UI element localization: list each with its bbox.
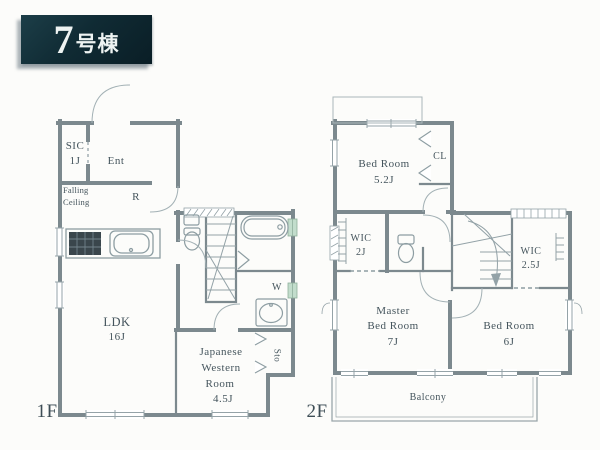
closet-door-chevrons [419, 131, 431, 181]
label-washer: W [272, 283, 282, 293]
label-jwr-3: Room [206, 379, 235, 390]
kitchen-counter [66, 229, 160, 258]
windows [55, 119, 582, 419]
label-bedroom6: Bed Room [483, 321, 534, 332]
toilet-2f [398, 235, 414, 263]
floorplan-drawing [0, 0, 600, 450]
label-entrance: Ent [108, 156, 125, 167]
bathtub [238, 216, 288, 269]
label-balcony: Balcony [410, 393, 447, 403]
stairs-2f [452, 214, 512, 287]
label-ldk: LDK [103, 316, 130, 329]
label-refrigerator: R [132, 192, 140, 203]
toilet-1f [184, 215, 200, 250]
stairs-1f [206, 216, 236, 299]
label-master-1: Master [376, 306, 410, 317]
floorplan-page: 7 号棟 [0, 0, 600, 450]
label-closet: CL [433, 152, 447, 162]
label-master-2: Bed Room [367, 321, 418, 332]
label-jwr-2: Western [201, 363, 240, 374]
label-floor-1f: 1F [36, 402, 57, 421]
label-wic2-size: 2J [356, 248, 366, 258]
label-wic25-size: 2.5J [522, 261, 540, 271]
label-storage: Sto [273, 349, 282, 363]
label-ldk-size: 16J [109, 332, 126, 343]
label-bedroom52-size: 5.2J [374, 175, 394, 186]
label-wic2: WIC [351, 234, 372, 244]
label-master-size: 7J [388, 337, 399, 348]
washbasin [256, 299, 287, 326]
label-jwr-1: Japanese [199, 347, 242, 358]
label-sic: SIC [66, 141, 85, 152]
label-falling-ceiling-1: Falling [63, 186, 89, 195]
label-bedroom6-size: 6J [504, 337, 515, 348]
storage-door-chevrons [255, 333, 266, 373]
label-floor-2f: 2F [306, 402, 327, 421]
label-wic25: WIC [521, 247, 542, 257]
label-bedroom52: Bed Room [358, 159, 409, 170]
label-jwr-size: 4.5J [213, 394, 233, 405]
label-falling-ceiling-2: Ceiling [63, 198, 89, 207]
label-sic-size: 1J [70, 156, 81, 167]
